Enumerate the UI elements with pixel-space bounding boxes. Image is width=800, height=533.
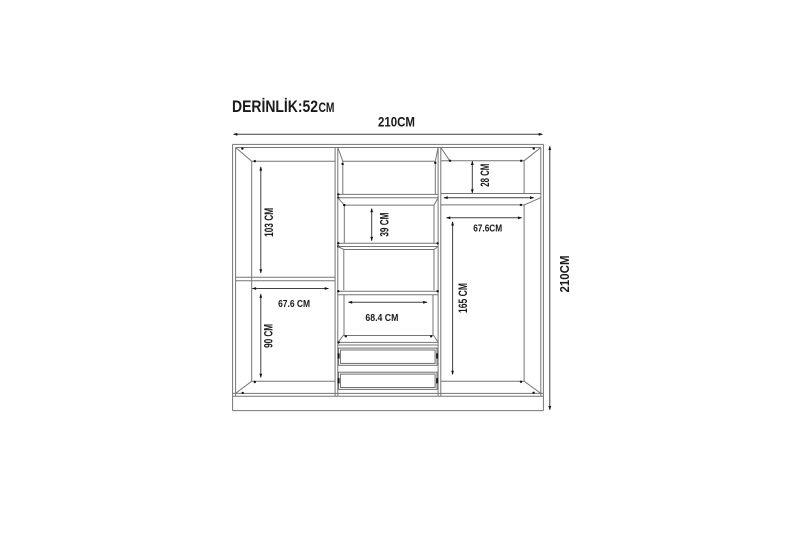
svg-text:DERİNLİK:52: DERİNLİK:52 <box>232 98 318 116</box>
svg-text:39 CM: 39 CM <box>379 213 391 237</box>
svg-text:28 CM: 28 CM <box>480 164 492 187</box>
svg-text:67.6 CM: 67.6 CM <box>278 298 310 310</box>
svg-text:90 CM: 90 CM <box>264 324 276 348</box>
svg-text:67.6CM: 67.6CM <box>473 223 502 235</box>
svg-text:CM: CM <box>319 100 335 115</box>
svg-text:210CM: 210CM <box>558 256 572 293</box>
svg-text:165 CM: 165 CM <box>458 283 470 313</box>
svg-text:103 CM: 103 CM <box>264 208 276 237</box>
svg-text:210CM: 210CM <box>378 114 415 130</box>
svg-text:68.4 CM: 68.4 CM <box>365 312 398 324</box>
